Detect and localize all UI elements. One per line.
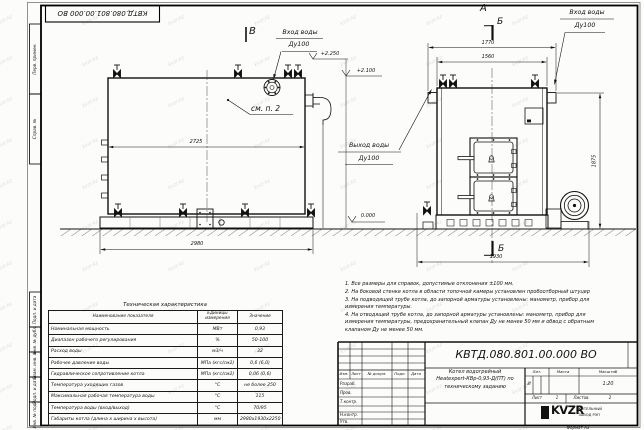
tb-header: Подп.: [394, 372, 406, 376]
row-units: МВт: [198, 324, 238, 335]
drain-block: [423, 222, 433, 229]
row-units: м3/ч: [198, 346, 238, 357]
wall-brackets: [102, 140, 109, 198]
row-name: Расход воды: [49, 346, 198, 357]
tb-header: Дата: [411, 372, 421, 376]
row-value: 50-100: [238, 335, 283, 346]
dim-label: 1560: [482, 55, 495, 60]
valve-icon: [308, 204, 315, 217]
inlet-flange: [264, 80, 280, 96]
row-name: Гидравлическое сопротивление котла: [49, 369, 198, 380]
table-row: Максимальная рабочая температура воды °С…: [49, 391, 283, 402]
note-item: 2. На боковой стенке котла в области топ…: [345, 289, 597, 296]
door-handle: [458, 196, 474, 199]
table-row: Габариты котла (длина х ширина х высота)…: [49, 414, 283, 425]
elevation-label: 0.000: [361, 214, 375, 219]
dim-label: 2980: [191, 242, 204, 247]
row-value: 115: [238, 391, 283, 402]
row-value: 0,06 (0,6): [238, 369, 283, 380]
mass-label: Масса: [557, 370, 569, 374]
ground-line: [60, 229, 636, 236]
col-header-value: Значение: [238, 311, 283, 324]
inlet-water-label: Вход воды: [282, 30, 317, 36]
row-name: Рабочее давление воды: [49, 357, 198, 368]
row-name: Температура уходящих газов: [49, 380, 198, 391]
row-units: °С: [198, 391, 238, 402]
note-item: 4. На отводящей трубе котла, до запорной…: [345, 312, 597, 333]
row-value: 0,6 (6,0): [238, 357, 283, 368]
row-units: МПа (кгс/см2): [198, 369, 238, 380]
sheet-label: Лист: [532, 396, 542, 400]
scale-label: Масштаб: [599, 370, 618, 374]
sign-row-label: Разраб.: [340, 382, 356, 386]
sign-row-label: Утв.: [340, 420, 348, 424]
row-name: Номинальная мощность: [49, 324, 198, 335]
drain-valve-icon: [424, 202, 431, 215]
view-b-label: В: [249, 27, 256, 37]
tech-table: Наименование показателя Единицы измерени…: [48, 310, 283, 426]
valve-icon: [114, 65, 121, 78]
drawing-sheet: kvzr.kzkvzr.kzkvzr.kzkvzr.kzkvzr.kzkvzr.…: [0, 0, 644, 430]
table-row: Температура уходящих газов °С не более 2…: [49, 380, 283, 391]
col-header-name: Наименование показателя: [49, 311, 198, 324]
outlet-water-dn: Ду100: [359, 156, 380, 162]
inlet-water-label: Вход воды: [569, 10, 604, 16]
valve-icon: [295, 65, 302, 78]
section-b-label: Б: [497, 18, 503, 27]
sheets-value: 2: [609, 396, 612, 400]
elevation-label: +2.100: [357, 69, 376, 74]
tb-header: Лист: [351, 372, 361, 376]
row-name: Максимальная рабочая температура воды: [49, 391, 198, 402]
lit-value: И: [527, 383, 530, 388]
inlet-water-dn: Ду100: [289, 42, 310, 48]
tech-table-title: Техническая характеристика: [48, 302, 282, 308]
inlet-water-dn: Ду100: [575, 23, 596, 29]
outlet-water-label: Выход воды: [349, 143, 389, 149]
sign-row-label: Пров.: [340, 391, 352, 395]
sign-row-label: Н.контр.: [340, 413, 358, 417]
tech-characteristics: Техническая характеристика Наименование …: [48, 302, 282, 426]
row-value: не более 250: [238, 380, 283, 391]
view-a-label: А: [480, 4, 487, 14]
margin-label: Инв. № подл.: [33, 400, 37, 429]
row-value: 0,93: [238, 324, 283, 335]
dim-label: 1875: [593, 155, 598, 168]
tb-header: Изм.: [340, 372, 349, 376]
furnace-door-upper: [458, 138, 517, 177]
drain-fitting: [219, 220, 224, 225]
name-plate: [525, 108, 543, 124]
inlet-stub: [547, 93, 556, 104]
valve-icon: [532, 75, 539, 88]
table-row: Гидравлическое сопротивление котла МПа (…: [49, 369, 283, 380]
dim-label: 2725: [190, 140, 203, 145]
row-value: 2980х1930х2250: [238, 414, 283, 425]
table-row: Диапазон рабочего регулирования % 50-100: [49, 335, 283, 346]
row-units: °С: [198, 380, 238, 391]
table-row: Температура воды (вход/выход) °С 70/95: [49, 403, 283, 414]
lit-label: Лит.: [533, 370, 542, 374]
notes-list: 1. Все размеры для справок, допустимые о…: [345, 281, 597, 335]
blower-fan: [546, 192, 589, 230]
table-row: Рабочее давление воды МПа (кгс/см2) 0,6 …: [49, 357, 283, 368]
table-row: Номинальная мощность МВт 0,93: [49, 324, 283, 335]
doc-number: КВТД.080.801.00.000 ВО: [455, 349, 596, 360]
row-name: Диапазон рабочего регулирования: [49, 335, 198, 346]
side-base: [100, 217, 313, 228]
col-header-units: Единицы измерения: [198, 311, 238, 324]
tech-header-row: Наименование показателя Единицы измерени…: [49, 311, 283, 324]
row-name: Температура воды (вход/выход): [49, 403, 198, 414]
row-units: %: [198, 335, 238, 346]
valve-icon: [235, 65, 242, 78]
row-units: °С: [198, 403, 238, 414]
furnace-door-lower: [458, 177, 517, 215]
door-latch-icon: [489, 195, 494, 201]
valve-icon: [285, 65, 292, 78]
company-name-line: КОТЕЛЬНЫЙ: [579, 408, 603, 412]
margin-label: Инв. № дубл.: [33, 325, 37, 354]
tb-header: № докум.: [368, 372, 387, 376]
row-value: 32: [238, 346, 283, 357]
note-item: 3. На подводящей трубе котла, до запорно…: [345, 297, 597, 311]
valve-icon: [440, 75, 447, 88]
row-value: 70/95: [238, 403, 283, 414]
door-latch-icon: [489, 156, 494, 162]
section-b-label: Б: [498, 245, 504, 254]
sheet-value: 1: [556, 396, 559, 400]
note-item: 1. Все размеры для справок, допустимые о…: [345, 281, 597, 288]
row-units: МПа (кгс/см2): [198, 357, 238, 368]
format-label: Формат А3: [567, 426, 590, 430]
row-units: мм: [198, 414, 238, 425]
elevation-label: +2.250: [321, 52, 340, 57]
scale-value: 1:20: [603, 383, 614, 388]
margin-label: Справ. №: [33, 119, 37, 139]
company-name-line: ЗАВОД РЭП: [579, 414, 600, 418]
margin-label: Перв. примен.: [33, 43, 37, 74]
dim-label: 1930: [490, 255, 503, 260]
see-note-callout: см. п. 2: [251, 105, 280, 113]
sheets-label: Листов: [574, 396, 589, 400]
boiler-side-view: [100, 65, 331, 228]
margin-label: Подп. и дата: [33, 295, 37, 324]
side-view-dimensions: [100, 27, 385, 254]
top-stamp: КВТД.080.801.00.000 ВО: [45, 5, 160, 22]
sign-row-label: Т.контр.: [340, 400, 357, 404]
part-name-line: Котел водогрейный: [449, 370, 502, 375]
table-row: Расход воды м3/ч 32: [49, 346, 283, 357]
dim-label: 1770: [482, 41, 495, 46]
company-logo-mark: [541, 406, 549, 419]
part-name-line: Heatexpert-КВр-0,93-Д(ПТ) по: [436, 377, 513, 382]
row-name: Габариты котла (длина х ширина х высота): [49, 414, 198, 425]
outlet-pipe: [305, 93, 331, 228]
valve-icon: [450, 75, 457, 88]
bottom-flange: [197, 209, 213, 228]
door-handle: [458, 157, 474, 160]
part-name-line: техническому заданию: [444, 385, 506, 390]
